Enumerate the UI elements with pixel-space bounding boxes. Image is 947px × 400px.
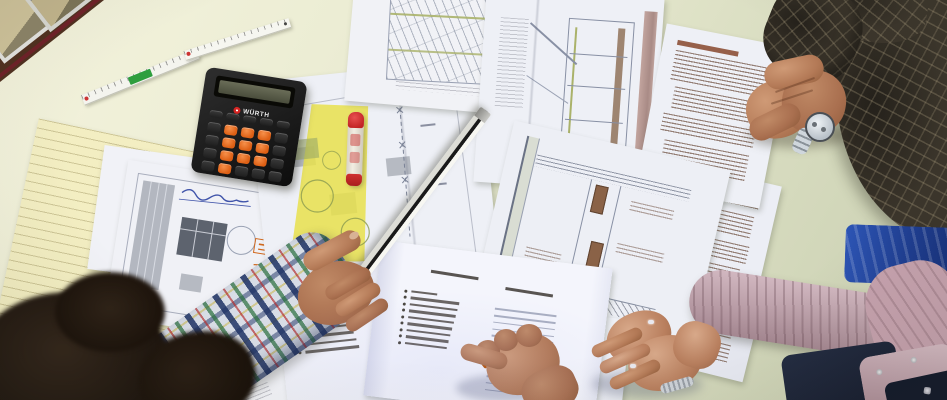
ring (630, 364, 636, 368)
press-stud-button (876, 369, 883, 376)
calculator-key (205, 134, 219, 146)
folding-rule-rivet (84, 96, 89, 101)
booklet-column-heading (505, 287, 553, 298)
section-green-line (567, 27, 577, 147)
knuckle (516, 324, 542, 347)
calculator-key (268, 171, 282, 183)
folding-rule-hole (284, 22, 288, 26)
calculator-key (253, 155, 267, 167)
checkbox-dot (399, 334, 402, 337)
checkbox-dot (403, 295, 406, 298)
ring (648, 320, 654, 324)
calculator-function-key (260, 118, 274, 127)
detail-layer-lines (535, 155, 692, 202)
side-table-corner (0, 0, 130, 95)
clasped-hands-woman (590, 298, 720, 400)
press-stud-button (910, 356, 917, 363)
glue-stick-base (346, 174, 362, 187)
calculator-key (255, 142, 269, 154)
curly-hair (55, 272, 165, 352)
calculator-key (240, 127, 254, 139)
folding-rule-segment (81, 49, 200, 106)
calculator: WÜRTH (190, 67, 307, 188)
checkbox-dot (404, 289, 407, 292)
detail-wood-block (590, 185, 609, 215)
calculator-function-key (226, 112, 240, 121)
glue-stick-cap (348, 112, 365, 129)
calculator-key (220, 150, 234, 162)
watch-subdial (821, 127, 826, 132)
folding-rule-sticker (128, 69, 153, 85)
calculator-key (203, 147, 217, 159)
calculator-function-key (209, 110, 223, 119)
wrist-watch (793, 108, 837, 154)
calculator-key (207, 122, 221, 134)
glue-stick (346, 112, 365, 187)
booklet-column-heading (431, 270, 479, 281)
section-wood-bar (610, 28, 626, 154)
watch-subdial (812, 122, 817, 127)
glue-stick-window (350, 152, 360, 163)
calculator-function-key (243, 115, 257, 124)
hand-with-highlighter (450, 316, 575, 400)
checkbox-dot (403, 302, 406, 305)
calculator-key (238, 140, 252, 152)
photo-architects-table: BRAND (0, 0, 947, 400)
folding-rule-rivet (186, 51, 191, 56)
watch-face (805, 112, 835, 142)
detail-label (615, 243, 664, 265)
calculator-key (201, 160, 215, 172)
calculator-key (224, 124, 238, 136)
calculator-key (251, 168, 265, 180)
knuckle (494, 329, 518, 351)
checkbox-dot (398, 341, 401, 344)
glue-stick-window (350, 134, 360, 146)
item-text-bar (305, 345, 359, 353)
folding-rule-segment (183, 18, 291, 61)
detail-label (629, 201, 675, 223)
hand-holding-ruler (285, 218, 397, 330)
item-text-bar (405, 342, 447, 349)
calculator-key (222, 137, 236, 149)
checkbox-dot (400, 321, 403, 324)
checkbox-dot (401, 315, 404, 318)
calculator-keypad (201, 122, 291, 183)
checkbox-dot (399, 328, 402, 331)
calculator-key (270, 158, 284, 170)
calculator-function-key (276, 120, 290, 129)
checkbox-dot (402, 308, 405, 311)
necklace-pendant (923, 387, 931, 395)
calculator-key (234, 165, 248, 177)
calculator-key (257, 130, 271, 142)
calculator-key (272, 145, 286, 157)
calculator-key (236, 153, 250, 165)
calculator-key (274, 132, 288, 144)
section-dimension-column (495, 17, 529, 109)
calculator-key (217, 163, 231, 175)
item-text-bar (411, 290, 437, 295)
